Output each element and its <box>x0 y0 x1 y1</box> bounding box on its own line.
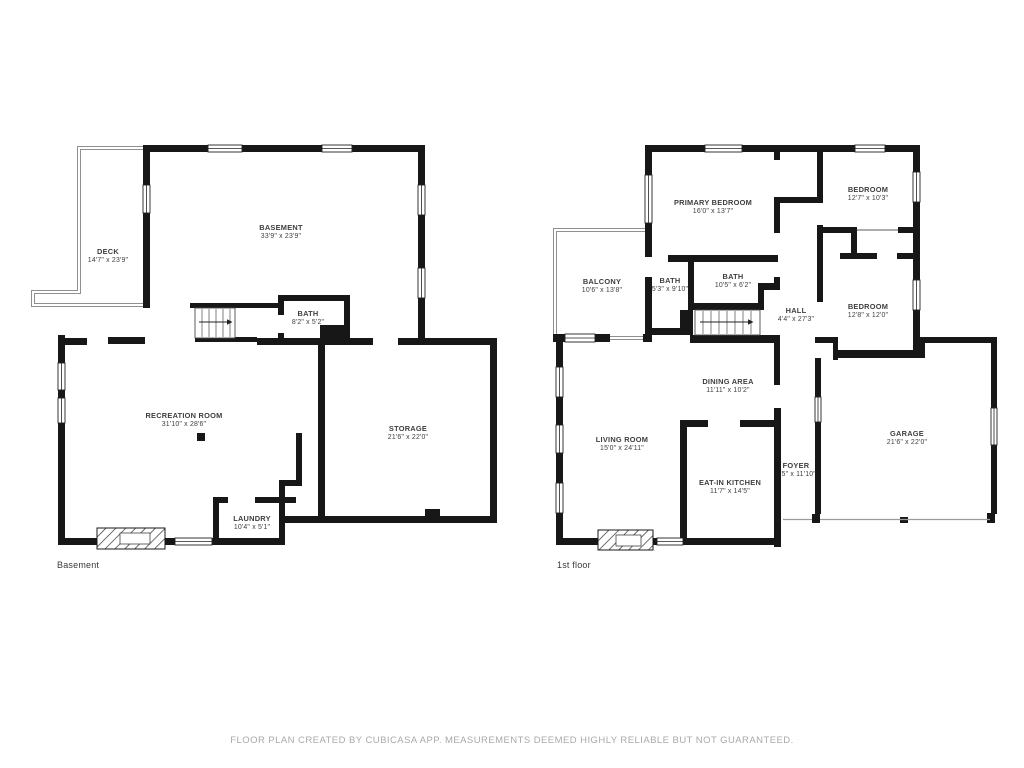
first-floor-plan <box>553 145 997 550</box>
basement-bay-window <box>97 528 165 549</box>
first-floor-stairs <box>680 310 760 335</box>
first-floor-walls <box>553 145 997 547</box>
basement-plan <box>32 145 498 549</box>
rec-room-fixture <box>197 433 205 441</box>
living-room-bay-window <box>598 530 653 550</box>
disclaimer-text: FLOOR PLAN CREATED BY CUBICASA APP. MEAS… <box>0 735 1024 746</box>
basement-stairs <box>195 308 235 338</box>
balcony-outline <box>554 229 646 340</box>
caption-first-floor: 1st floor <box>557 560 591 570</box>
floorplan-graphics <box>0 0 1024 768</box>
balcony-door-block <box>595 334 610 342</box>
bath-chimney-block <box>320 325 350 345</box>
deck-outline <box>32 147 144 307</box>
caption-basement: Basement <box>57 560 99 570</box>
basement-walls <box>58 145 497 545</box>
floorplan-page: DECK 14'7" x 23'9" BASEMENT 33'9" x 23'9… <box>0 0 1024 768</box>
storage-door-block <box>425 509 440 516</box>
